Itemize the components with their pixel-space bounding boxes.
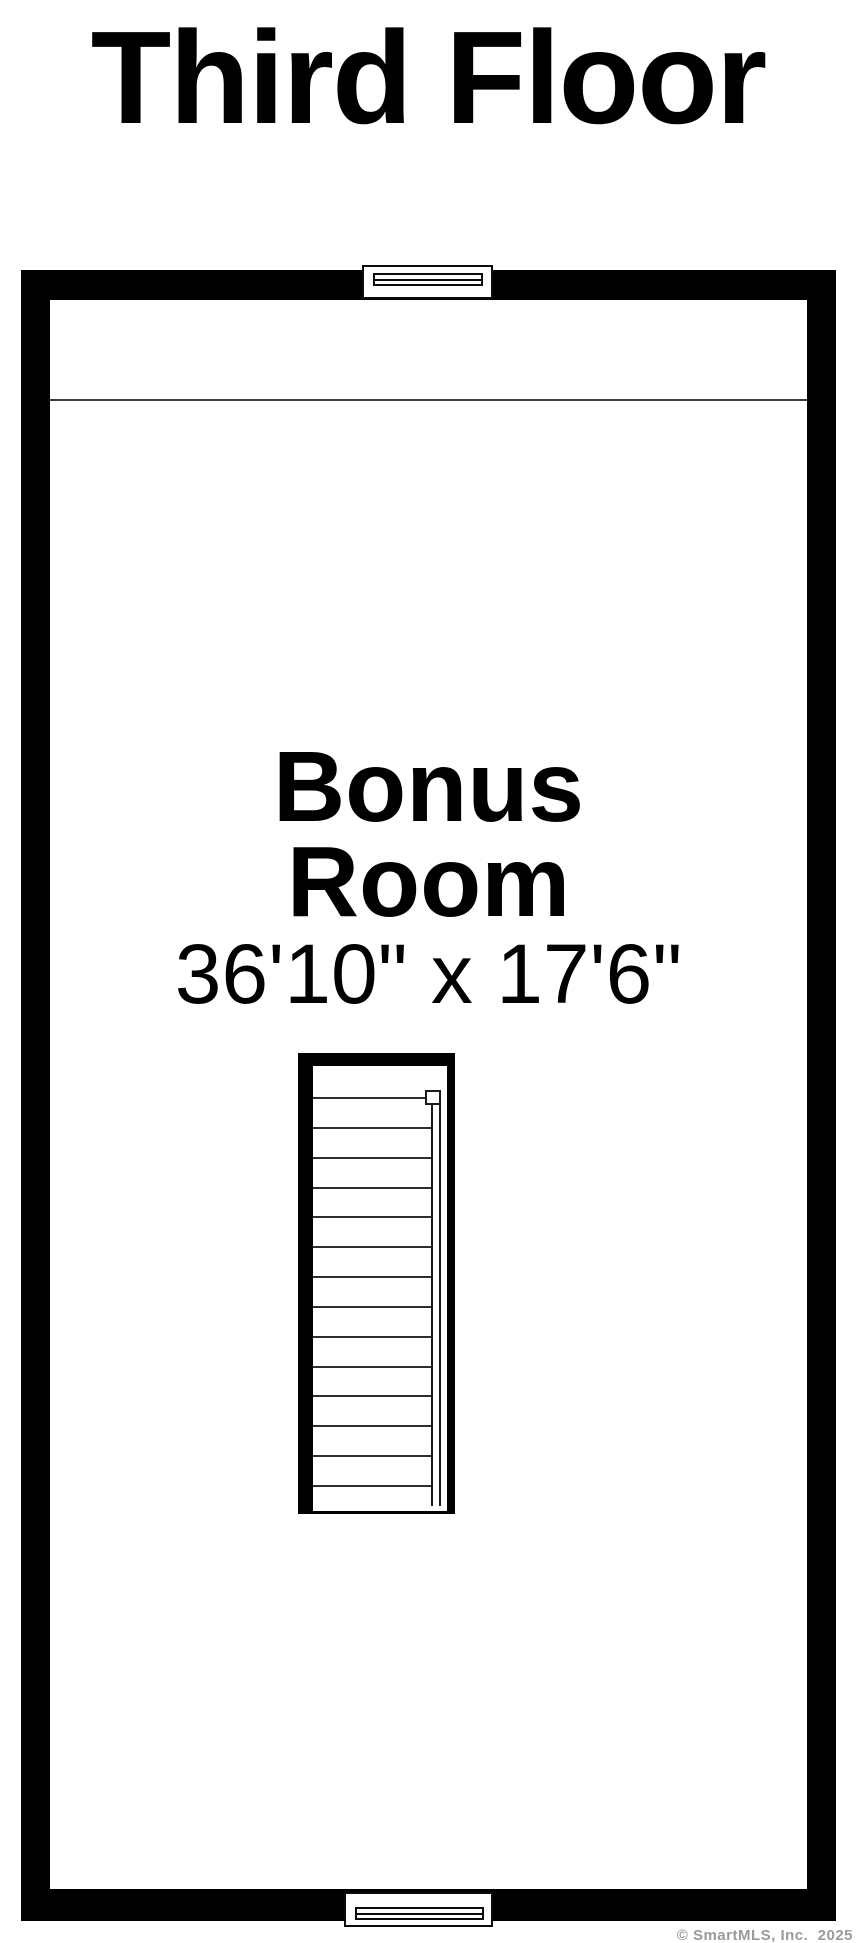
stair-tread	[313, 1157, 431, 1159]
stair-treads	[313, 1097, 431, 1487]
stair-tread	[313, 1127, 431, 1129]
stair-tread	[313, 1276, 431, 1278]
page-title: Third Floor	[0, 12, 856, 144]
handrail-line	[431, 1104, 433, 1506]
staircase	[298, 1053, 455, 1514]
hallway-divider-line	[50, 399, 807, 401]
stair-tread	[313, 1366, 431, 1368]
room-name-line2: Room	[21, 832, 836, 932]
stair-tread	[313, 1455, 431, 1457]
room-dimensions: 36'10" x 17'6"	[21, 932, 836, 1016]
top-window-glass	[373, 273, 483, 286]
watermark: © SmartMLS, Inc. 2025	[677, 1927, 853, 1943]
stair-tread	[313, 1246, 431, 1248]
staircase-inner	[313, 1066, 447, 1511]
stair-tread	[313, 1336, 431, 1338]
floor-plan-page: Third Floor Bonus Room 36'10" x 17'6" © …	[0, 0, 856, 1943]
stair-tread	[313, 1306, 431, 1308]
stair-tread	[313, 1187, 431, 1189]
bottom-window-glass	[355, 1907, 484, 1920]
top-window-icon	[362, 265, 493, 299]
newel-post	[425, 1090, 441, 1105]
bottom-window-glass-midline	[357, 1913, 482, 1915]
bottom-window-icon	[344, 1892, 493, 1927]
stair-tread	[313, 1216, 431, 1218]
stair-tread	[313, 1425, 431, 1427]
top-window-glass-midline	[375, 279, 481, 281]
stair-tread	[313, 1097, 431, 1099]
handrail-line	[439, 1104, 441, 1506]
stair-tread	[313, 1485, 431, 1487]
stair-tread	[313, 1395, 431, 1397]
room-name-line1: Bonus	[21, 737, 836, 837]
